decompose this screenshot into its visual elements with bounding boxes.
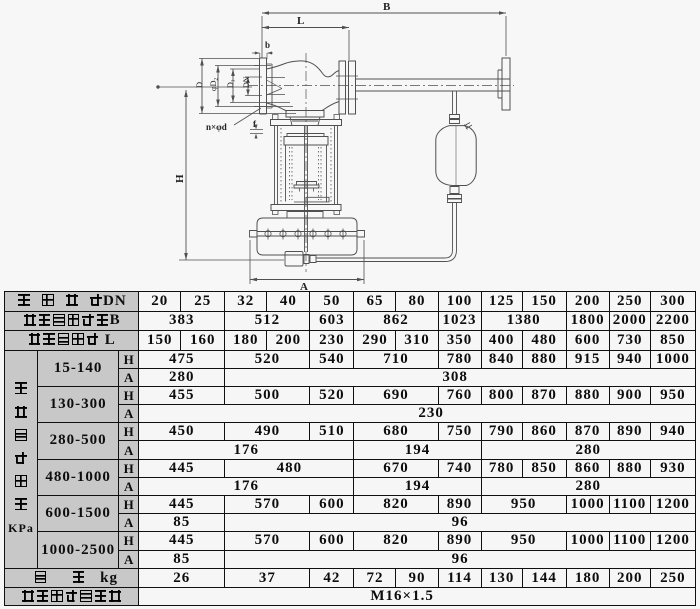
svg-text:D1: D1	[226, 79, 237, 88]
svg-text:b: b	[265, 40, 270, 50]
svg-text:DN: DN	[242, 76, 251, 88]
svg-text:L: L	[297, 15, 304, 27]
svg-text:A: A	[300, 281, 308, 291]
svg-text:B: B	[383, 1, 391, 13]
svg-text:n×φd: n×φd	[206, 122, 227, 132]
svg-text:φD2: φD2	[209, 78, 220, 91]
svg-text:D: D	[194, 82, 204, 88]
svg-text:H: H	[174, 174, 186, 183]
